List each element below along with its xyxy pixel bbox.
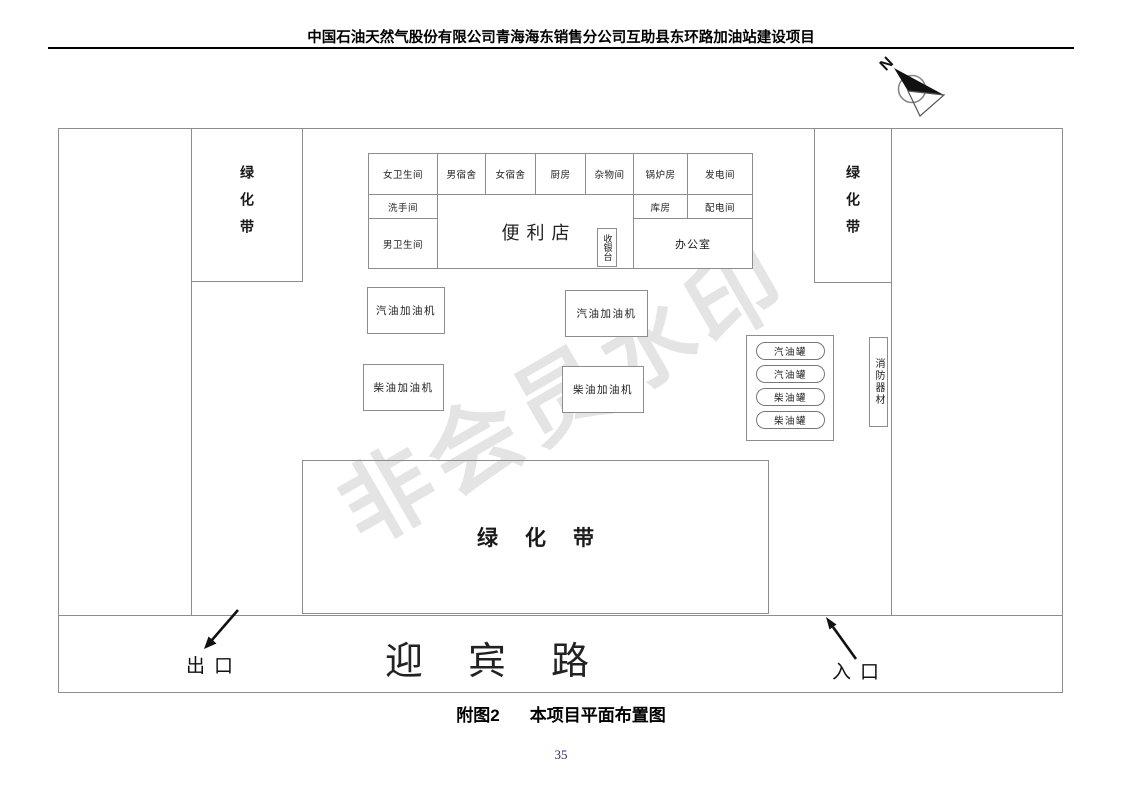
tank-label: 汽油罐 (774, 344, 807, 358)
room-office: 办公室 (633, 218, 753, 269)
tank-label: 汽油罐 (774, 367, 807, 381)
room-label: 库房 (650, 200, 670, 214)
room-label: 配电间 (705, 200, 735, 214)
room-mens-dorm: 男宿舍 (437, 153, 486, 195)
room-label: 女卫生间 (383, 167, 423, 181)
site-plan: 绿化带 绿化带 绿化带 女卫生间 男宿舍 女宿舍 厨房 杂物间 锅炉房 发电间 … (0, 0, 1122, 793)
room-womens-toilet: 女卫生间 (368, 153, 438, 195)
room-boiler: 锅炉房 (633, 153, 688, 195)
diesel-tank-2: 柴油罐 (756, 411, 825, 429)
green-belt-bottom-label: 绿化带 (450, 522, 621, 552)
room-storeroom: 库房 (633, 194, 688, 219)
gasoline-dispenser-1: 汽油加油机 (367, 287, 445, 334)
tank-area: 汽油罐 汽油罐 柴油罐 柴油罐 (746, 335, 834, 441)
room-power-distribution: 配电间 (687, 194, 753, 219)
dispenser-label: 柴油加油机 (374, 380, 434, 395)
exit-label: 出口 (186, 651, 242, 678)
diesel-dispenser-2: 柴油加油机 (562, 366, 644, 413)
room-kitchen: 厨房 (535, 153, 586, 195)
room-label: 发电间 (705, 167, 735, 181)
green-belt-left-label: 绿化带 (237, 165, 257, 246)
dispenser-label: 汽油加油机 (577, 306, 637, 321)
room-washroom: 洗手间 (368, 194, 438, 219)
store-label: 便利店 (495, 219, 577, 245)
room-label: 厨房 (550, 167, 570, 181)
gasoline-tank-2: 汽油罐 (756, 365, 825, 383)
room-label: 男卫生间 (383, 237, 423, 251)
room-label: 洗手间 (388, 200, 418, 214)
room-mens-toilet: 男卫生间 (368, 218, 438, 269)
cashier-counter: 收银台 (597, 228, 617, 267)
room-generator: 发电间 (687, 153, 753, 195)
road-name: 迎宾路 (385, 630, 634, 685)
cashier-label: 收银台 (603, 234, 612, 261)
exit-arrow-icon (200, 605, 245, 655)
room-womens-dorm: 女宿舍 (485, 153, 536, 195)
room-label: 办公室 (675, 236, 711, 252)
diesel-dispenser-1: 柴油加油机 (363, 364, 444, 411)
room-label: 杂物间 (594, 167, 624, 181)
green-belt-left: 绿化带 (191, 128, 303, 282)
dispenser-label: 汽油加油机 (376, 303, 436, 318)
room-label: 男宿舍 (446, 167, 476, 181)
green-belt-right: 绿化带 (814, 128, 892, 283)
room-sundry: 杂物间 (585, 153, 634, 195)
gasoline-tank-1: 汽油罐 (756, 342, 825, 360)
room-label: 锅炉房 (645, 167, 675, 181)
green-belt-right-label: 绿化带 (843, 165, 863, 246)
tank-label: 柴油罐 (774, 413, 807, 427)
dispenser-label: 柴油加油机 (573, 382, 633, 397)
diesel-tank-1: 柴油罐 (756, 388, 825, 406)
station-building: 女卫生间 男宿舍 女宿舍 厨房 杂物间 锅炉房 发电间 洗手间 男卫生间 便利店… (368, 153, 753, 269)
green-belt-bottom: 绿化带 (302, 460, 769, 614)
entrance-arrow-icon (818, 611, 863, 666)
document-page: 中国石油天然气股份有限公司青海海东销售分公司互助县东环路加油站建设项目 N 非会… (0, 0, 1122, 793)
fire-equipment-box: 消防器材 (869, 337, 888, 427)
fire-equipment-label: 消防器材 (871, 358, 886, 406)
gasoline-dispenser-2: 汽油加油机 (565, 290, 648, 337)
tank-label: 柴油罐 (774, 390, 807, 404)
room-label: 女宿舍 (495, 167, 525, 181)
